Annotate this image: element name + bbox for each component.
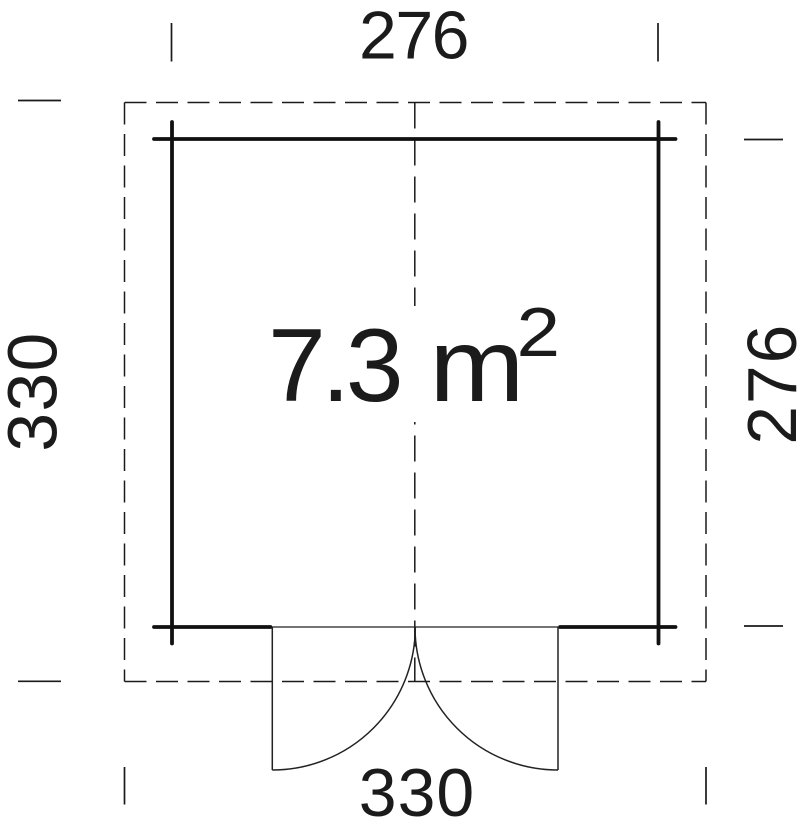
svg-text:276: 276 — [733, 323, 802, 445]
svg-text:7.3: 7.3 — [268, 308, 400, 424]
svg-text:330: 330 — [0, 331, 72, 451]
svg-text:2: 2 — [517, 293, 561, 371]
svg-text:276: 276 — [359, 0, 468, 74]
svg-text:m: m — [429, 308, 524, 424]
svg-text:330: 330 — [359, 755, 475, 826]
